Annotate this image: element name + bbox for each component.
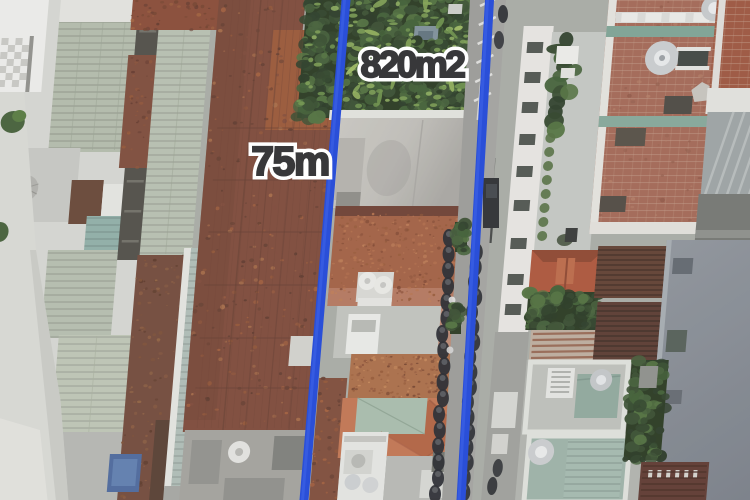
svg-text:820m2: 820m2 <box>361 44 466 85</box>
svg-text:75m: 75m <box>251 138 329 184</box>
